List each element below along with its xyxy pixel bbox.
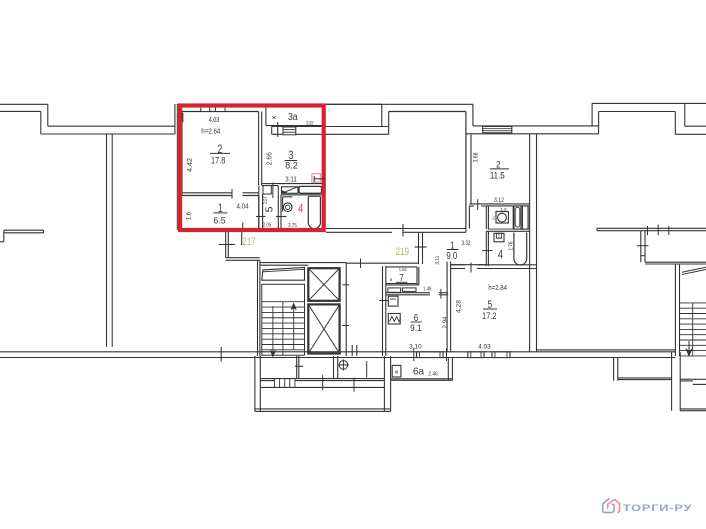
svg-text:4.03: 4.03	[209, 117, 220, 124]
svg-text:8.2: 8.2	[285, 161, 298, 172]
svg-text:2.94: 2.94	[442, 316, 449, 328]
svg-text:2.07: 2.07	[263, 196, 269, 204]
svg-text:4.03: 4.03	[478, 343, 491, 350]
svg-text:3.12: 3.12	[494, 197, 504, 204]
svg-text:3.11: 3.11	[285, 176, 297, 183]
svg-text:1.76: 1.76	[508, 242, 514, 251]
svg-text:2.87: 2.87	[306, 121, 313, 127]
svg-text:6а: 6а	[413, 365, 424, 377]
svg-text:6.5: 6.5	[214, 215, 226, 226]
svg-text:3.11: 3.11	[435, 256, 441, 265]
svg-text:2: 2	[492, 216, 495, 222]
svg-text:1.9: 1.9	[501, 207, 508, 212]
svg-text:4: 4	[298, 202, 303, 216]
svg-text:ж: ж	[272, 115, 276, 121]
svg-text:1.6: 1.6	[185, 212, 192, 220]
svg-text:9.1: 9.1	[410, 323, 422, 334]
svg-text:4.28: 4.28	[456, 300, 463, 313]
svg-text:9.0: 9.0	[446, 251, 457, 262]
svg-text:2.46: 2.46	[428, 371, 438, 377]
svg-text:4.04: 4.04	[237, 203, 249, 210]
svg-text:1: 1	[498, 234, 501, 240]
svg-text:1.49: 1.49	[423, 286, 431, 292]
svg-text:2.66: 2.66	[265, 152, 274, 165]
svg-text:3.68: 3.68	[474, 152, 480, 163]
svg-text:3.32: 3.32	[462, 241, 472, 247]
svg-text:h=2.64: h=2.64	[201, 127, 220, 136]
svg-text:h=2.84: h=2.84	[488, 283, 507, 292]
svg-text:17.8: 17.8	[211, 155, 225, 165]
svg-text:219: 219	[396, 246, 410, 258]
svg-text:3.10: 3.10	[409, 343, 422, 350]
svg-text:5: 5	[264, 206, 276, 212]
svg-text:17.2: 17.2	[482, 311, 497, 322]
svg-text:4.42: 4.42	[185, 158, 194, 172]
svg-text:4: 4	[498, 248, 503, 262]
svg-text:2.05: 2.05	[263, 222, 272, 228]
svg-text:217: 217	[242, 236, 255, 248]
svg-text:1.54: 1.54	[399, 267, 407, 272]
svg-text:11.5: 11.5	[490, 171, 505, 182]
svg-text:3а: 3а	[288, 112, 298, 123]
svg-text:ТОРГИ-РУ: ТОРГИ-РУ	[623, 503, 693, 513]
svg-text:2: 2	[218, 144, 223, 156]
